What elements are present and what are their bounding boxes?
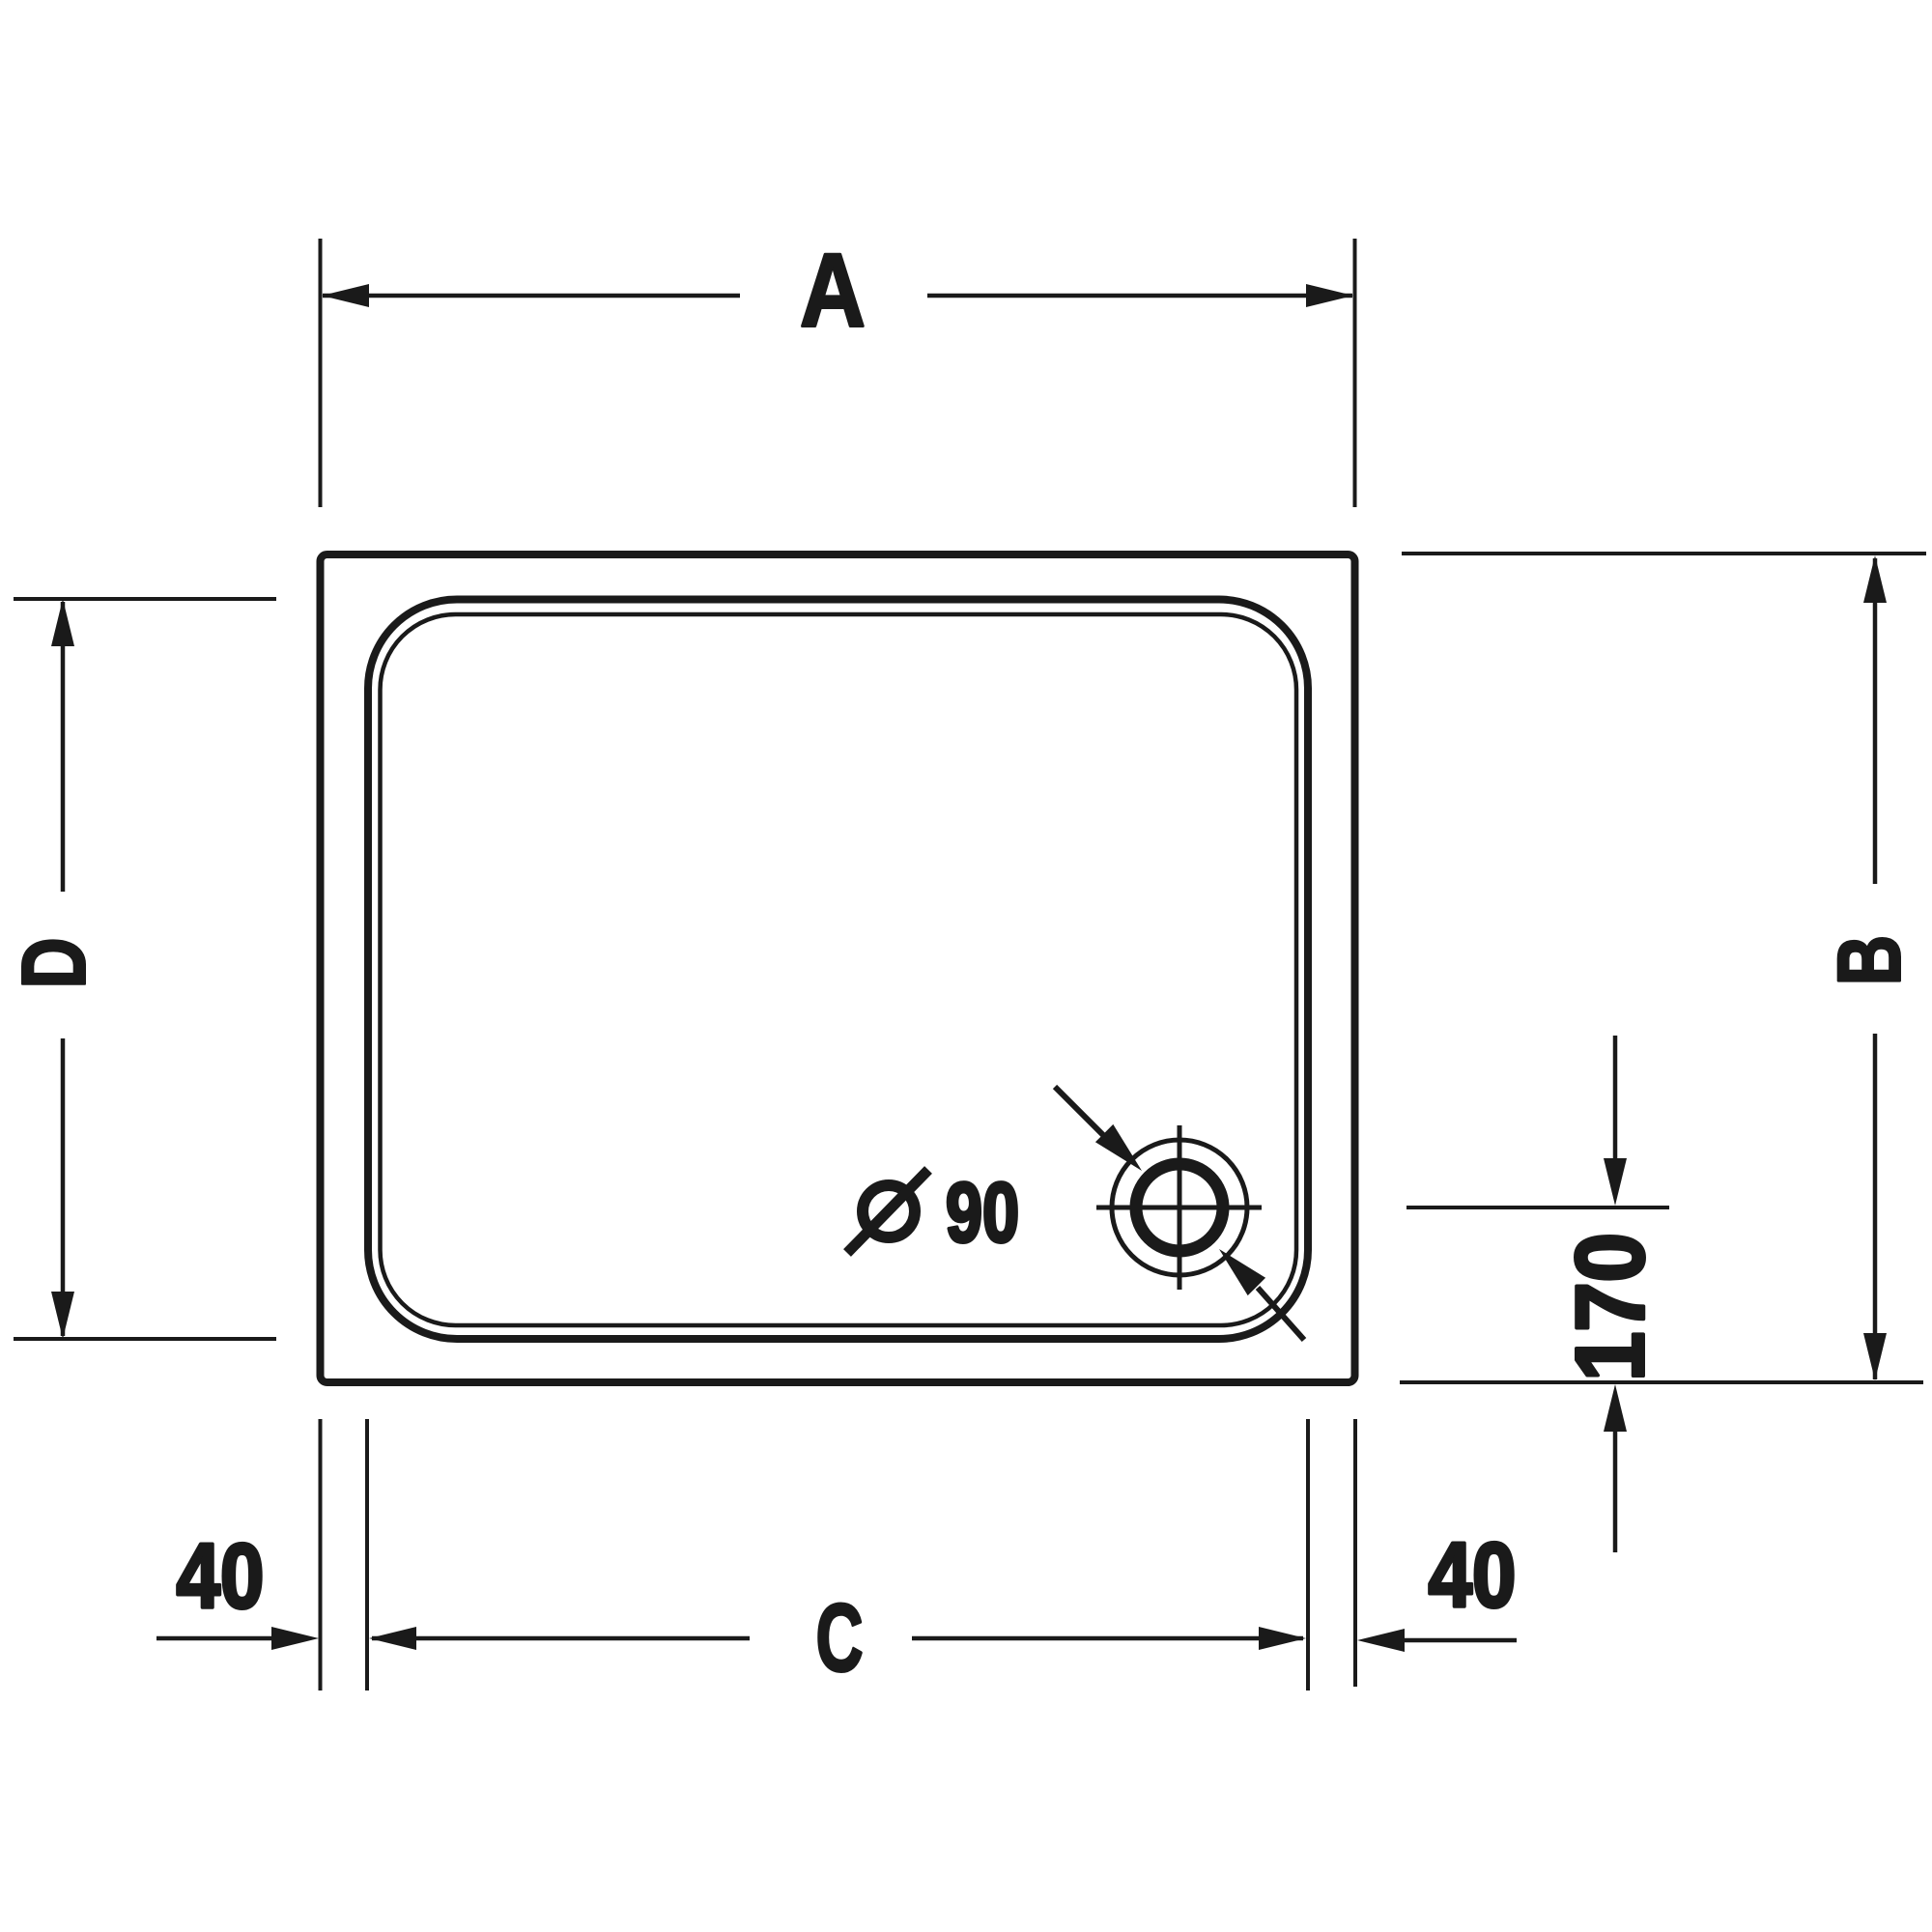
- svg-text:B: B: [1819, 935, 1918, 985]
- svg-text:D: D: [3, 937, 103, 988]
- svg-text:A: A: [800, 232, 866, 349]
- svg-text:170: 170: [1557, 1233, 1664, 1381]
- svg-text:90: 90: [946, 1165, 1019, 1260]
- svg-text:40: 40: [1429, 1523, 1517, 1626]
- svg-text:C: C: [815, 1584, 863, 1691]
- svg-text:40: 40: [177, 1524, 265, 1627]
